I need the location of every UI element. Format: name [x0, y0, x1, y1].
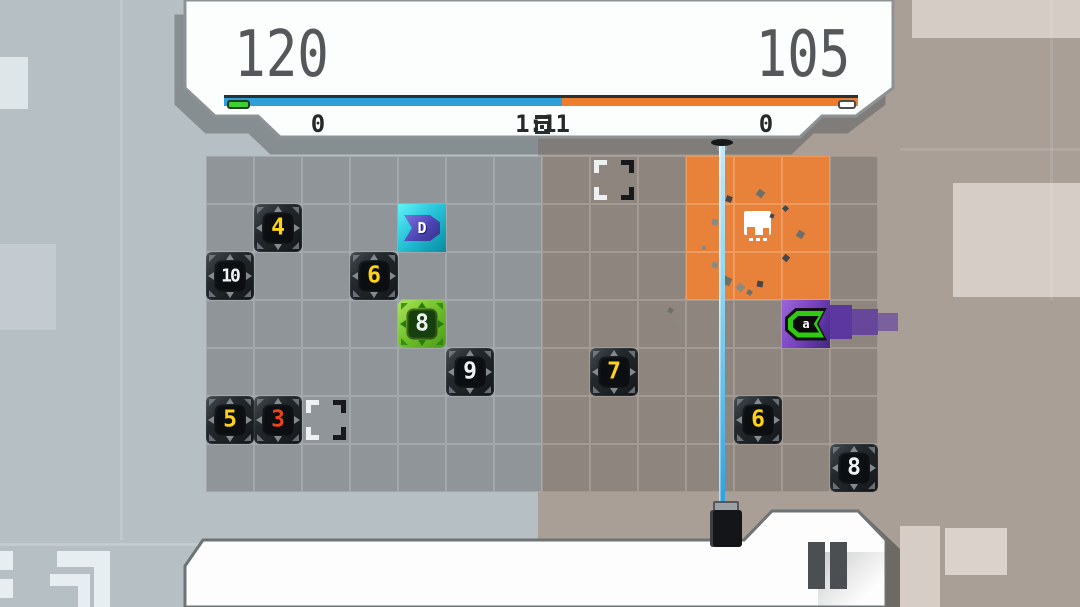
pause-icon — [830, 542, 847, 589]
blue-counter: 0 — [300, 112, 336, 136]
orange-score: 105 — [758, 28, 848, 82]
orange-counter: 0 — [748, 112, 784, 136]
orange-progress-fill — [562, 98, 858, 106]
orange-end-cap — [838, 100, 856, 109]
laser-turret[interactable] — [710, 510, 742, 547]
blue-score: 120 — [235, 28, 328, 82]
pause-icon — [808, 542, 825, 589]
laser-cap-icon — [711, 139, 733, 146]
pause-button[interactable] — [795, 535, 857, 597]
game-screen: 41068953768Da 120 105 0 0 1:11 — [0, 0, 1080, 607]
laser-beam — [719, 146, 725, 508]
bottom-panel — [0, 0, 1080, 607]
timer-value: 1:11 — [515, 112, 569, 136]
blue-progress-fill — [224, 98, 562, 106]
match-timer: 1:11 — [492, 111, 592, 137]
blue-end-cap — [227, 100, 250, 109]
